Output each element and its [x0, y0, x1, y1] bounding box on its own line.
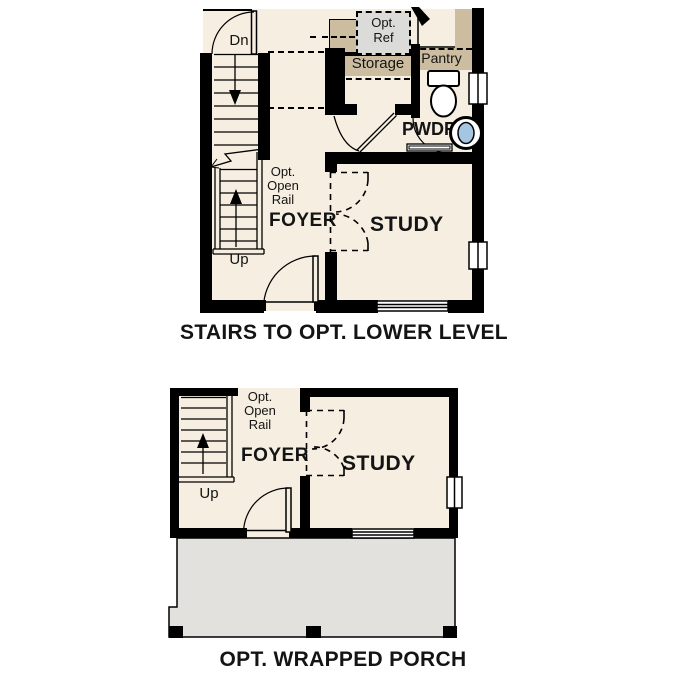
foyer-label: FOYER: [269, 211, 331, 231]
opt-open-rail-label: Rail: [230, 418, 290, 432]
study-left-wall: [300, 388, 310, 412]
opt-open-rail-label: Open: [230, 404, 290, 418]
dn-label: Dn: [221, 33, 257, 49]
upper-plan-caption: STAIRS TO OPT. LOWER LEVEL: [144, 322, 544, 344]
storage-label: Storage: [345, 56, 411, 72]
opt-open-rail-label: Rail: [253, 193, 313, 207]
opt-open-rail-label: Opt.: [230, 390, 290, 404]
opt-ref-label: Opt.: [356, 16, 411, 30]
wall: [203, 9, 252, 11]
closet-wall: [395, 104, 411, 115]
up-label: Up: [191, 486, 227, 502]
counter-line: [331, 36, 355, 38]
porch-post-icon: [306, 626, 321, 638]
wall: [170, 388, 179, 538]
study-top-wall: [325, 152, 484, 164]
up-label: Up: [221, 252, 257, 268]
opt-ref-label: Ref: [356, 31, 411, 45]
closet-wall: [325, 48, 345, 115]
pantry-label: Pantry: [411, 51, 472, 66]
pantry-shelf-column: [455, 9, 472, 49]
porch-area: [169, 538, 457, 638]
wall: [414, 528, 458, 538]
shelf-line: [346, 78, 410, 80]
study-label: STUDY: [342, 453, 412, 475]
wall: [448, 300, 484, 313]
entry-threshold: [264, 300, 316, 311]
pwdr-label: PWDR: [402, 120, 454, 139]
wall: [170, 528, 245, 538]
wall: [291, 528, 352, 538]
entry-threshold: [245, 528, 291, 538]
porch-post-icon: [443, 626, 457, 638]
overhead-line: [268, 51, 324, 53]
overhead-line: [268, 107, 324, 109]
wall: [200, 300, 264, 313]
porch-post-icon: [169, 626, 183, 638]
wall: [200, 53, 212, 313]
study-label: STUDY: [370, 214, 442, 236]
study-left-wall: [325, 164, 337, 172]
lower-plan-caption: OPT. WRAPPED PORCH: [143, 649, 543, 671]
floorplan-canvas: Dn Opt. Ref Storage Pantry PWDR Opt. Ope…: [0, 0, 687, 687]
closet-wall: [345, 104, 357, 115]
study-top-wall: [300, 388, 458, 397]
wall: [170, 388, 238, 396]
wall: [449, 388, 458, 538]
opt-open-rail-label: Open: [253, 179, 313, 193]
counter-line: [310, 36, 328, 38]
opt-open-rail-label: Opt.: [253, 165, 313, 179]
study-left-wall: [325, 252, 337, 313]
foyer-label: FOYER: [241, 446, 299, 466]
